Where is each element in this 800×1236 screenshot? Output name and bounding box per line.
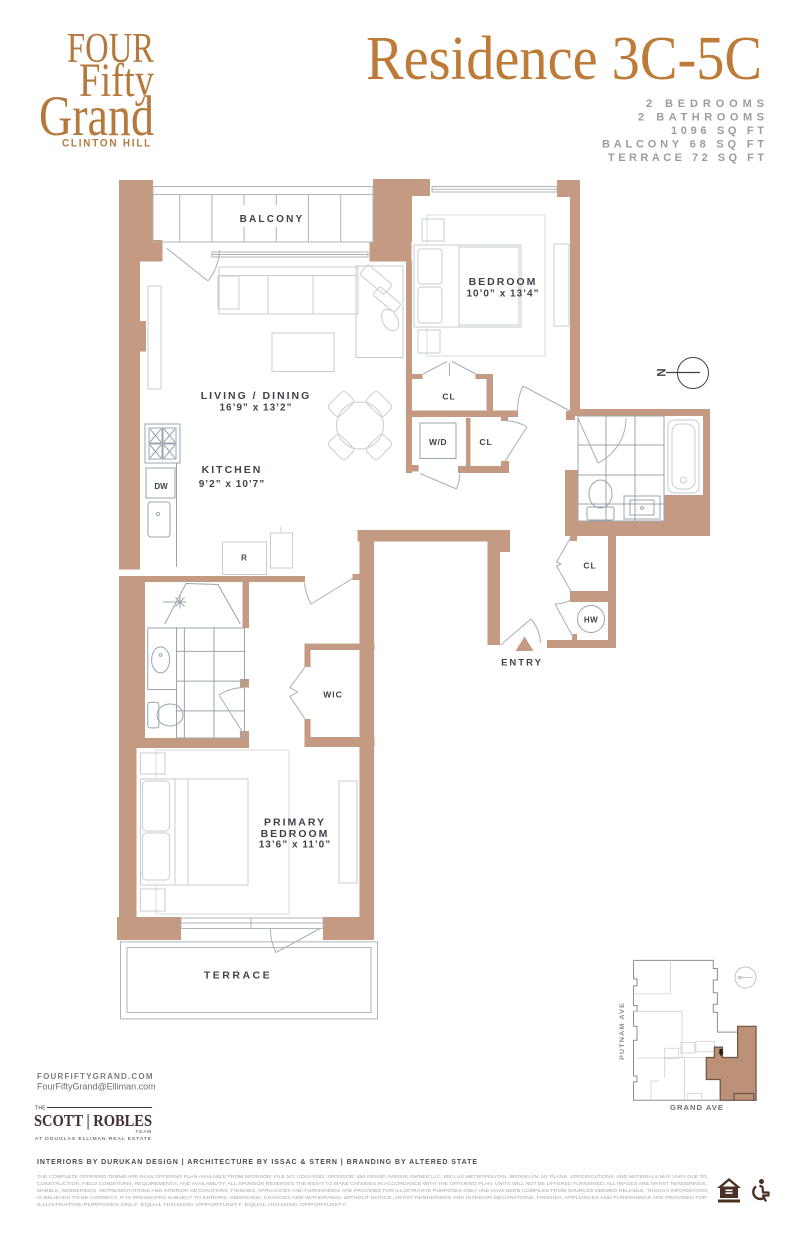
svg-text:GRAND AVE: GRAND AVE xyxy=(670,1103,724,1112)
svg-text:LIVING / DINING: LIVING / DINING xyxy=(201,390,312,402)
svg-text:CLINTON HILL: CLINTON HILL xyxy=(62,138,152,150)
svg-text:9’2” x 10’7”: 9’2” x 10’7” xyxy=(199,479,265,490)
svg-text:PUTNAM AVE: PUTNAM AVE xyxy=(619,1002,626,1060)
svg-text:BEDROOM: BEDROOM xyxy=(261,828,330,840)
svg-text:SCOTT | ROBLES: SCOTT | ROBLES xyxy=(34,1111,152,1130)
svg-text:TEAM: TEAM xyxy=(135,1129,152,1134)
svg-text:W/D: W/D xyxy=(429,437,447,447)
svg-text:TERRACE: TERRACE xyxy=(204,970,272,982)
svg-text:Residence 3C-5C: Residence 3C-5C xyxy=(366,25,762,93)
svg-text:CL: CL xyxy=(479,437,492,447)
svg-text:THE COMPLETE OFFERING TERMS AR: THE COMPLETE OFFERING TERMS ARE IN AN OF… xyxy=(37,1174,707,1179)
svg-text:CONSTRUCTION, FIELD CONDITIONS: CONSTRUCTION, FIELD CONDITIONS, REQUIREM… xyxy=(37,1181,707,1186)
svg-text:FourFiftyGrand@Elliman.com: FourFiftyGrand@Elliman.com xyxy=(37,1082,156,1092)
svg-text:CL: CL xyxy=(583,561,596,571)
svg-text:10’0” x 13’4”: 10’0” x 13’4” xyxy=(466,289,539,300)
svg-text:IS BELIEVED TO BE CORRECT, IT: IS BELIEVED TO BE CORRECT, IT IS PRESENT… xyxy=(37,1195,708,1200)
svg-text:WIC: WIC xyxy=(323,690,343,700)
svg-text:INTERIORS BY DURUKAN DESIGN |: INTERIORS BY DURUKAN DESIGN | ARCHITECTU… xyxy=(37,1157,478,1166)
svg-text:N: N xyxy=(654,368,666,376)
svg-text:AT DOUGLAS ELLIMAN REAL ESTATE: AT DOUGLAS ELLIMAN REAL ESTATE xyxy=(35,1136,152,1141)
svg-text:ENTRY: ENTRY xyxy=(501,658,543,669)
svg-text:HW: HW xyxy=(584,616,598,625)
svg-text:CL: CL xyxy=(442,392,455,402)
svg-text:FOURFIFTYGRAND.COM: FOURFIFTYGRAND.COM xyxy=(37,1072,154,1081)
svg-text:BEDROOM: BEDROOM xyxy=(469,276,538,288)
svg-text:PRIMARY: PRIMARY xyxy=(264,817,326,829)
svg-text:16’9” x 13’2”: 16’9” x 13’2” xyxy=(219,403,292,414)
svg-text:BALCONY: BALCONY xyxy=(240,214,305,225)
svg-text:KITCHEN: KITCHEN xyxy=(202,464,263,476)
svg-text:MARBLE, RENDERINGS, REPRESENTA: MARBLE, RENDERINGS, REPRESENTATIONS AND … xyxy=(37,1188,707,1193)
svg-text:BALCONY 68 SQ FT: BALCONY 68 SQ FT xyxy=(602,139,764,151)
svg-text:TERRACE 72 SQ FT: TERRACE 72 SQ FT xyxy=(608,152,764,164)
svg-text:DW: DW xyxy=(154,482,168,491)
svg-text:N: N xyxy=(736,976,742,980)
svg-text:ILLUSTRATIVE PURPOSES ONLY. EQ: ILLUSTRATIVE PURPOSES ONLY. EQUAL HOUSIN… xyxy=(37,1202,347,1207)
svg-text:R: R xyxy=(241,554,247,563)
svg-text:13’6” x 11’0”: 13’6” x 11’0” xyxy=(259,840,332,851)
svg-text:1096 SQ FT: 1096 SQ FT xyxy=(671,125,764,137)
